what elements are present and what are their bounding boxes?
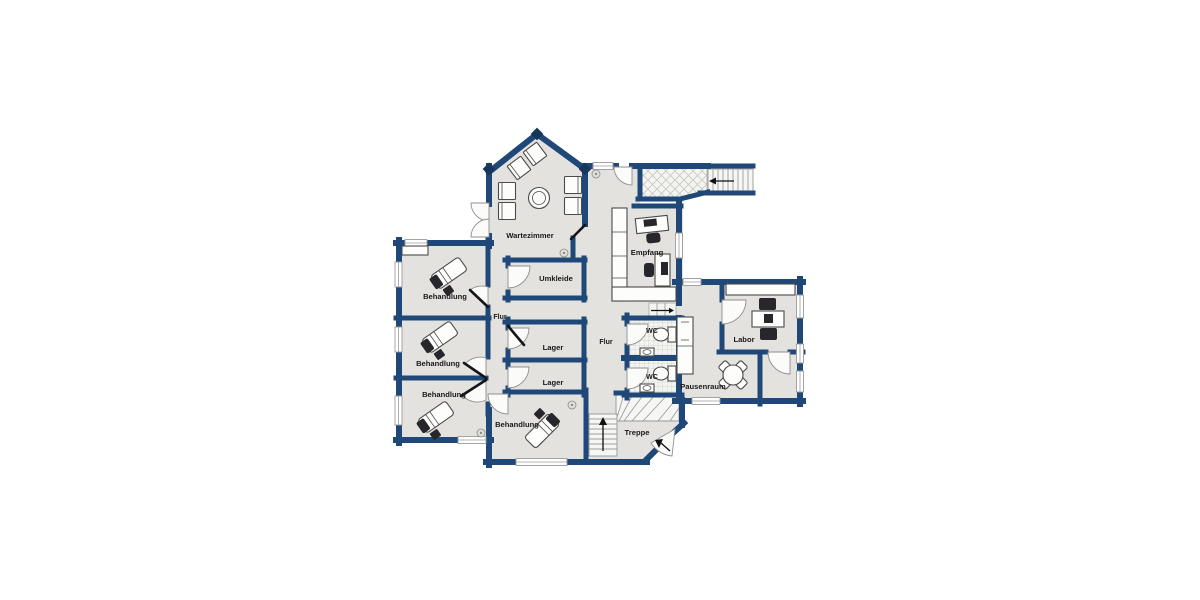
window bbox=[395, 262, 402, 287]
window bbox=[458, 437, 486, 444]
window bbox=[405, 240, 427, 247]
french-door-waiting-room bbox=[471, 203, 489, 221]
waiting-chair bbox=[565, 198, 582, 215]
room-label-behandlung-1: Behandlung bbox=[423, 292, 467, 301]
room-label-flur-1: Flur bbox=[493, 314, 506, 321]
window bbox=[676, 233, 683, 258]
room-label-wc-1: WC bbox=[646, 328, 658, 335]
room-label-lager-1: Lager bbox=[543, 343, 564, 352]
room-label-wc-2: WC bbox=[646, 374, 658, 381]
room-label-empfang: Empfang bbox=[631, 248, 664, 257]
room-label-lager-2: Lager bbox=[543, 378, 564, 387]
window bbox=[395, 396, 402, 425]
window bbox=[395, 327, 402, 352]
room-label-behandlung-3: Behandlung bbox=[422, 390, 466, 399]
sink-icon bbox=[640, 384, 654, 392]
window bbox=[797, 344, 804, 363]
room-label-labor: Labor bbox=[733, 335, 754, 344]
room-label-behandlung-2: Behandlung bbox=[416, 359, 460, 368]
interior-straight-stair bbox=[589, 414, 617, 456]
kitchenette-counter bbox=[677, 317, 693, 374]
room-label-umkleide: Umkleide bbox=[539, 274, 573, 283]
window bbox=[516, 459, 567, 466]
floor-plan-page: Wartezimmer Umkleide Empfang Behandlung … bbox=[0, 0, 1200, 600]
symbol-marker bbox=[560, 249, 568, 257]
sink-icon bbox=[640, 348, 654, 356]
symbol-marker bbox=[568, 401, 576, 409]
window bbox=[683, 279, 701, 286]
window bbox=[797, 371, 804, 392]
room-label-treppe: Treppe bbox=[625, 428, 650, 437]
window bbox=[797, 295, 804, 318]
window bbox=[593, 163, 613, 170]
waiting-chair bbox=[565, 177, 582, 194]
exterior-staircase bbox=[708, 169, 753, 193]
symbol-marker bbox=[477, 429, 485, 437]
room-label-pausenraum: Pausenraum bbox=[680, 382, 726, 391]
cabinet bbox=[402, 246, 428, 255]
floor-plan-drawing: Wartezimmer Umkleide Empfang Behandlung … bbox=[0, 0, 1200, 600]
symbol-marker bbox=[592, 170, 600, 178]
room-label-wartezimmer: Wartezimmer bbox=[506, 231, 553, 240]
round-side-table bbox=[529, 188, 550, 209]
french-door-waiting-room bbox=[471, 219, 489, 237]
room-label-behandlung-4: Behandlung bbox=[495, 420, 539, 429]
waiting-chair bbox=[499, 183, 516, 200]
room-label-flur-2: Flur bbox=[599, 339, 612, 346]
window bbox=[692, 398, 720, 405]
labor-counter bbox=[726, 284, 795, 295]
waiting-chair bbox=[499, 203, 516, 220]
